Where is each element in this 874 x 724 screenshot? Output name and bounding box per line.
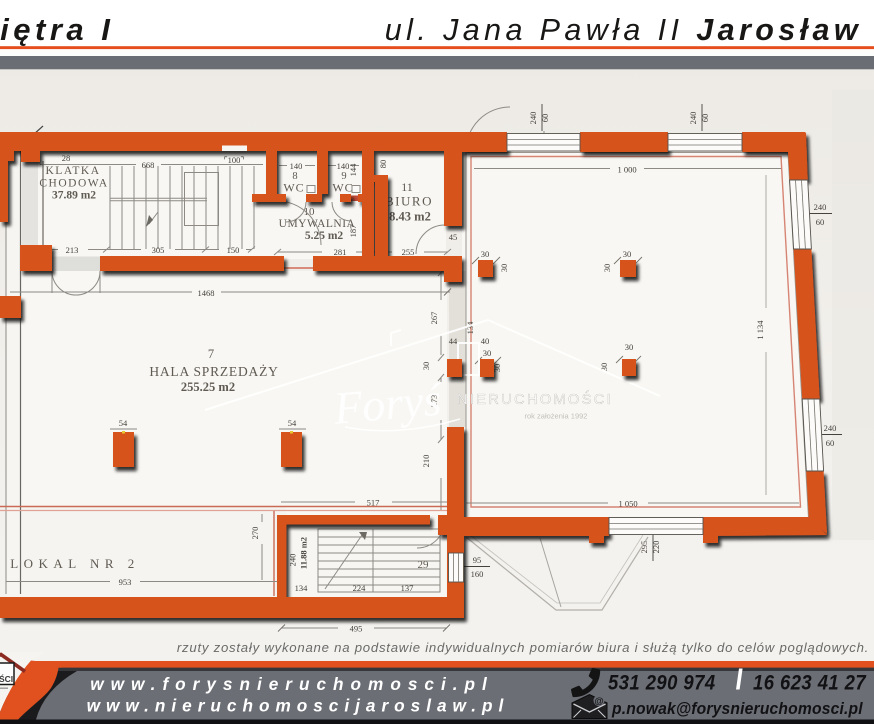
svg-text:30: 30 bbox=[421, 362, 431, 371]
svg-text:267: 267 bbox=[429, 312, 439, 325]
svg-text:ul. Jana Pawła II Jarosław: ul. Jana Pawła II Jarosław bbox=[385, 13, 862, 47]
svg-text:30: 30 bbox=[481, 249, 490, 259]
svg-text:54: 54 bbox=[119, 418, 128, 428]
svg-text:134: 134 bbox=[295, 583, 309, 593]
svg-text:@: @ bbox=[594, 696, 603, 707]
svg-text:54: 54 bbox=[288, 418, 297, 428]
svg-text:305: 305 bbox=[152, 245, 165, 255]
svg-text:www.nieruchomoscijaroslaw.pl: www.nieruchomoscijaroslaw.pl bbox=[87, 696, 510, 716]
svg-text:95: 95 bbox=[473, 555, 482, 565]
svg-text:281: 281 bbox=[334, 247, 347, 257]
svg-text:668: 668 bbox=[142, 160, 155, 170]
svg-text:953: 953 bbox=[119, 577, 132, 587]
svg-text:16 623 41 27: 16 623 41 27 bbox=[753, 671, 867, 694]
svg-text:1 050: 1 050 bbox=[618, 499, 637, 509]
svg-text:⌜100⌝: ⌜100⌝ bbox=[224, 155, 245, 165]
svg-text:rok założenia 1992: rok założenia 1992 bbox=[525, 412, 588, 421]
svg-text:240: 240 bbox=[688, 112, 698, 125]
svg-text:150: 150 bbox=[227, 245, 240, 255]
svg-text:213: 213 bbox=[66, 245, 79, 255]
svg-text:7: 7 bbox=[208, 347, 214, 361]
svg-text:255.25 m2: 255.25 m2 bbox=[181, 380, 235, 394]
svg-text:WC: WC bbox=[283, 181, 304, 195]
svg-text:8.43 m2: 8.43 m2 bbox=[389, 210, 431, 224]
svg-text:137: 137 bbox=[401, 583, 414, 593]
svg-text:1468: 1468 bbox=[198, 288, 215, 298]
svg-text:60: 60 bbox=[540, 114, 550, 123]
svg-text:30: 30 bbox=[625, 342, 634, 352]
svg-text:11.88 m2: 11.88 m2 bbox=[299, 537, 309, 569]
svg-text:30: 30 bbox=[483, 348, 492, 358]
svg-text:NIERUCHOMOŚCI: NIERUCHOMOŚCI bbox=[457, 390, 613, 408]
svg-text:www.forysnieruchomosci.pl: www.forysnieruchomosci.pl bbox=[90, 674, 494, 694]
svg-text:1 000: 1 000 bbox=[617, 165, 636, 175]
svg-text:240: 240 bbox=[814, 202, 827, 212]
svg-text:80: 80 bbox=[378, 160, 388, 169]
svg-text:270: 270 bbox=[250, 527, 260, 540]
svg-text:30: 30 bbox=[499, 264, 509, 273]
svg-text:28: 28 bbox=[62, 153, 71, 163]
svg-text:Foryś: Foryś bbox=[331, 373, 445, 433]
svg-text:40: 40 bbox=[481, 336, 490, 346]
svg-text:30: 30 bbox=[623, 249, 632, 259]
svg-text:60: 60 bbox=[700, 114, 710, 123]
svg-text:495: 495 bbox=[350, 624, 363, 634]
svg-text:30: 30 bbox=[602, 264, 612, 273]
svg-text:ŚCI: ŚCI bbox=[0, 673, 13, 684]
svg-text:LOKAL NR 2: LOKAL NR 2 bbox=[10, 556, 140, 571]
svg-text:5.25 m2: 5.25 m2 bbox=[305, 230, 344, 242]
svg-text:144: 144 bbox=[348, 163, 358, 177]
svg-text:240: 240 bbox=[288, 554, 298, 567]
svg-text:140: 140 bbox=[290, 161, 303, 171]
svg-text:44: 44 bbox=[449, 336, 458, 346]
svg-text:60: 60 bbox=[816, 217, 825, 227]
svg-text:37.89 m2: 37.89 m2 bbox=[52, 190, 96, 202]
svg-text:CHODOWA: CHODOWA bbox=[39, 178, 108, 190]
svg-text:531 290 974: 531 290 974 bbox=[608, 671, 716, 694]
svg-text:11: 11 bbox=[401, 180, 413, 194]
svg-text:160: 160 bbox=[471, 569, 484, 579]
svg-text:KLATKA: KLATKA bbox=[46, 165, 101, 177]
svg-text:187: 187 bbox=[348, 225, 358, 238]
svg-text:HALA SPRZEDAŻY: HALA SPRZEDAŻY bbox=[149, 364, 278, 379]
svg-text:p.nowak@forysnieruchomosci.pl: p.nowak@forysnieruchomosci.pl bbox=[611, 699, 863, 718]
svg-text:240: 240 bbox=[824, 423, 837, 433]
svg-text:210: 210 bbox=[421, 455, 431, 468]
svg-text:60: 60 bbox=[826, 438, 835, 448]
svg-text:220: 220 bbox=[651, 541, 661, 554]
svg-text:240: 240 bbox=[528, 112, 538, 125]
svg-text:255: 255 bbox=[402, 247, 415, 257]
svg-text:BIURO: BIURO bbox=[385, 194, 433, 209]
svg-text:rzuty zostały wykonane na pods: rzuty zostały wykonane na podstawie indy… bbox=[177, 640, 869, 655]
svg-text:29: 29 bbox=[418, 559, 430, 571]
svg-text:1 134: 1 134 bbox=[755, 320, 765, 340]
svg-text:WC: WC bbox=[332, 181, 353, 195]
svg-text:45: 45 bbox=[449, 232, 458, 242]
svg-text:Piętra I: Piętra I bbox=[0, 12, 114, 47]
svg-text:224: 224 bbox=[353, 583, 367, 593]
